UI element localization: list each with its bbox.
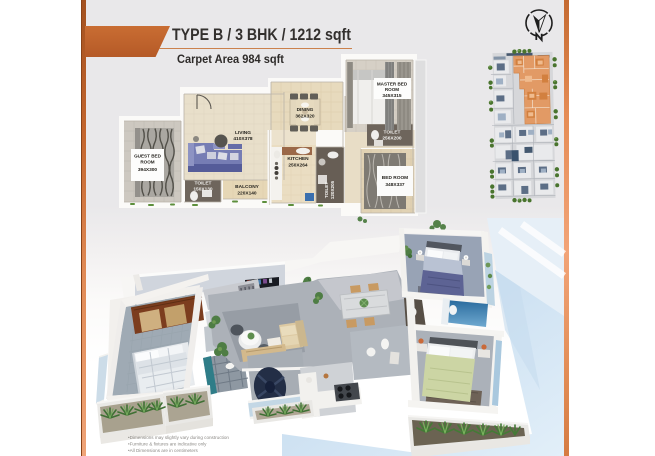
svg-text:GUEST BED: GUEST BED: [134, 154, 161, 159]
svg-text:345X315: 345X315: [382, 93, 402, 99]
svg-text:TOILET: TOILET: [384, 130, 401, 136]
svg-text:362X320: 362X320: [295, 114, 315, 120]
svg-text:•All Dimensions are in centime: •All Dimensions are in centimeters: [128, 448, 198, 453]
svg-text:TOILET: TOILET: [324, 182, 329, 198]
svg-text:DINING: DINING: [297, 107, 314, 113]
svg-text:LIVING: LIVING: [235, 130, 251, 136]
svg-text:410X378: 410X378: [233, 136, 253, 142]
svg-text:BED ROOM: BED ROOM: [382, 175, 408, 181]
svg-text:KITCHEN: KITCHEN: [287, 156, 309, 162]
svg-text:ROOM: ROOM: [140, 160, 154, 165]
svg-text:394X300: 394X300: [138, 167, 158, 173]
svg-text:TOILET: TOILET: [195, 181, 212, 187]
svg-text:BALCONY: BALCONY: [235, 184, 260, 190]
svg-text:348X337: 348X337: [385, 182, 405, 188]
svg-text:220X140: 220X140: [237, 191, 257, 197]
svg-text:•Furniture & fixtures are indi: •Furniture & fixtures are indicative onl…: [128, 442, 207, 447]
svg-text:250X264: 250X264: [288, 163, 308, 169]
svg-text:120X205: 120X205: [330, 180, 335, 199]
svg-text:•Dimensions may slightly vary: •Dimensions may slightly vary during con…: [128, 435, 229, 440]
svg-text:ROOM: ROOM: [385, 87, 399, 92]
svg-text:256X200: 256X200: [382, 136, 402, 142]
svg-text:MASTER BED: MASTER BED: [377, 82, 408, 87]
svg-text:150X130: 150X130: [193, 187, 213, 193]
